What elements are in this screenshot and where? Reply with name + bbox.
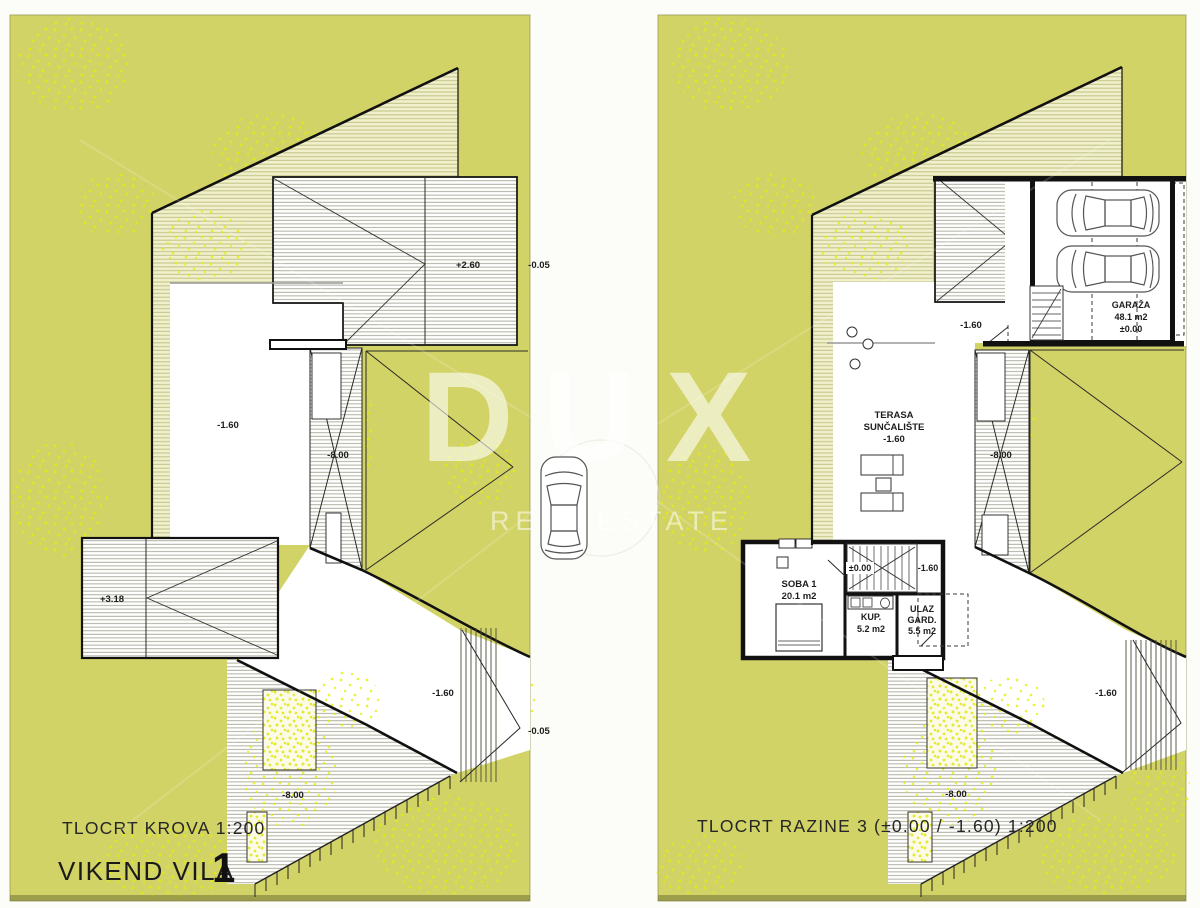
right-planting-bed (927, 678, 977, 768)
plant-circle-3 (850, 359, 860, 369)
parked-car-2 (1057, 246, 1159, 292)
bed (776, 604, 822, 651)
level-label-roof-main: +2.60 (456, 260, 480, 271)
level-label-outside-garage: -1.60 (960, 320, 982, 331)
level-label-right-slope: -8.00 (945, 789, 967, 800)
level-label-terrace: -1.60 (217, 420, 239, 431)
watermark-tagline: REAL ESTATE (490, 506, 734, 536)
plan-drawing: +2.60 -0.05 -1.60 -8.00 +3.18 -1.60 -0.0… (0, 0, 1200, 908)
entry-step (893, 656, 943, 670)
bedroom-area: 20.1 m2 (782, 591, 817, 602)
plant-circle-2 (863, 339, 873, 349)
project-number: 1 (212, 844, 235, 891)
right-lightwell (975, 350, 1029, 573)
stair-level-upper: ±0.00 (849, 563, 871, 573)
street-car (541, 457, 587, 559)
level-label-slope: -8.00 (282, 790, 304, 801)
bathroom-area: 5.2 m2 (857, 624, 885, 634)
garage-level: ±0.00 (1120, 324, 1142, 334)
watermark-brand: DUX (421, 346, 781, 489)
left-plan-caption: TLOCRT KROVA 1:200 (62, 818, 266, 838)
left-panel-shadow (10, 895, 530, 901)
bedroom-block (743, 539, 943, 658)
entry-name-line1: ULAZ (910, 604, 934, 614)
garage-stairs (1030, 286, 1063, 340)
floor-plan-sheet: +2.60 -0.05 -1.60 -8.00 +3.18 -1.60 -0.0… (0, 0, 1200, 908)
right-plan-caption: TLOCRT RAZINE 3 (±0.00 / -1.60) 1:200 (697, 816, 1058, 836)
left-planting-bed (263, 690, 316, 770)
level-label-driveway: -1.60 (432, 688, 454, 699)
parked-car-1 (1057, 190, 1159, 236)
level-label-roof-lower: +3.18 (100, 594, 124, 605)
sun-lounger-2 (861, 493, 903, 511)
level-label-lightwell: -8.00 (327, 450, 349, 461)
nightstand (777, 557, 788, 568)
right-terrace-retaining-edge (983, 341, 1184, 347)
project-title: VIKEND VILA (58, 856, 235, 886)
entry-area: 5.5 m2 (908, 626, 936, 636)
left-canopy-bar (270, 340, 346, 349)
level-label-right-driveway: -1.60 (1095, 688, 1117, 699)
stair-level-lower: -1.60 (918, 563, 939, 573)
left-terrace-notch (273, 303, 343, 341)
terrace-level: -1.60 (883, 434, 905, 445)
entry-name-line2: GARD. (908, 615, 937, 625)
bathroom-name: KUP. (861, 612, 881, 622)
level-label-plot-ne: -0.05 (528, 260, 550, 271)
bathroom-fixtures (848, 596, 893, 609)
sun-lounger-1 (861, 455, 903, 475)
bedroom-name: SOBA 1 (781, 579, 817, 590)
right-retaining-wall (1123, 640, 1181, 772)
plant-circle-1 (847, 327, 857, 337)
terrace-name-line2: SUNČALIŠTE (864, 421, 925, 433)
level-label-right-lightwell: -8.00 (990, 450, 1012, 461)
level-label-plot-se: -0.05 (528, 726, 550, 737)
right-panel-shadow (658, 895, 1186, 901)
terrace-name-line1: TERASA (874, 410, 913, 421)
garage-area: 48.1 m2 (1114, 312, 1147, 322)
lounger-table (876, 478, 891, 491)
garage-name: GARAŽA (1112, 299, 1151, 310)
